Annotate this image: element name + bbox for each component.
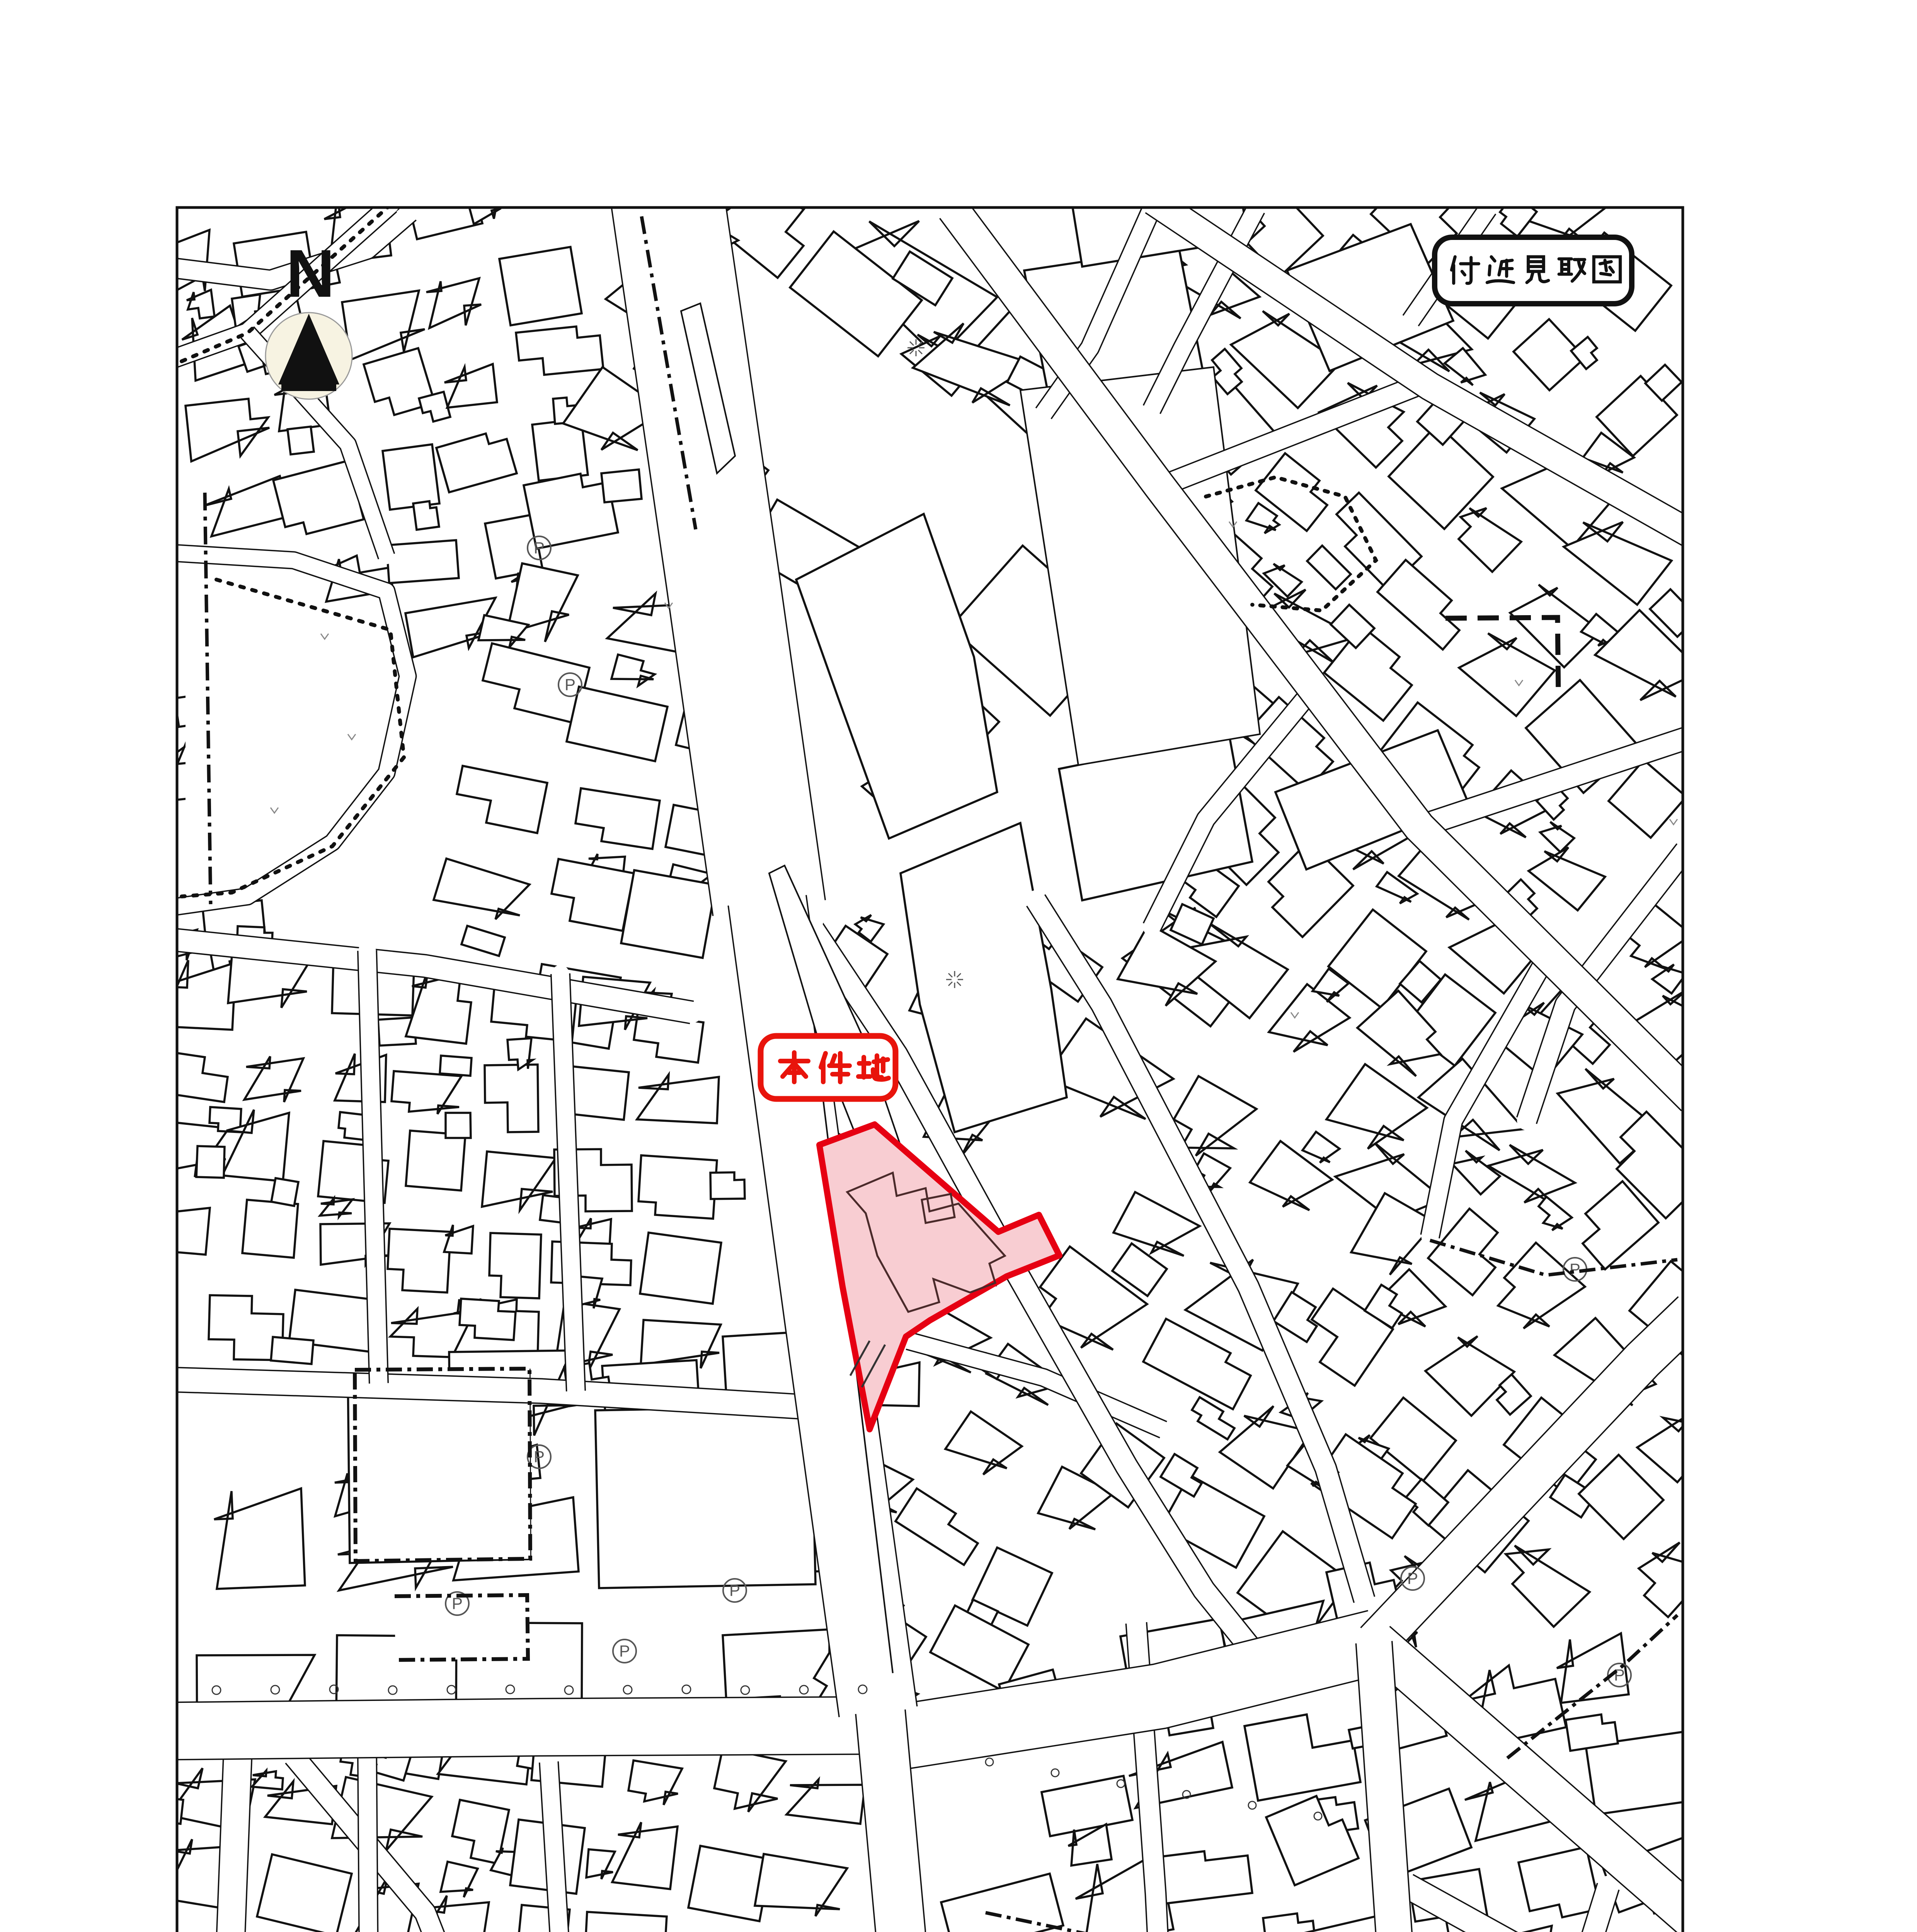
- svg-text:P: P: [534, 1447, 545, 1466]
- svg-text:P: P: [1614, 1666, 1625, 1684]
- svg-text:P: P: [534, 539, 545, 557]
- svg-text:N: N: [286, 236, 335, 311]
- svg-text:P: P: [1407, 1569, 1418, 1587]
- svg-text:P: P: [619, 1642, 630, 1660]
- svg-text:P: P: [1570, 1260, 1580, 1278]
- svg-text:P: P: [729, 1581, 740, 1599]
- svg-text:P: P: [565, 675, 575, 694]
